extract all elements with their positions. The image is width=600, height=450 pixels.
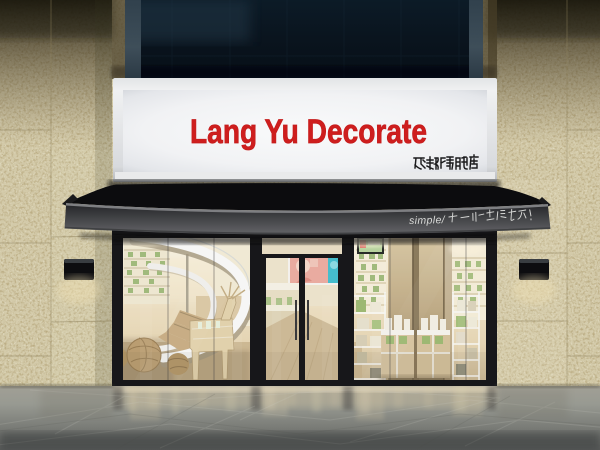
svg-text:Lang Yu Decorate: Lang Yu Decorate (190, 113, 427, 151)
svg-text:simple/: simple/ (409, 214, 446, 227)
